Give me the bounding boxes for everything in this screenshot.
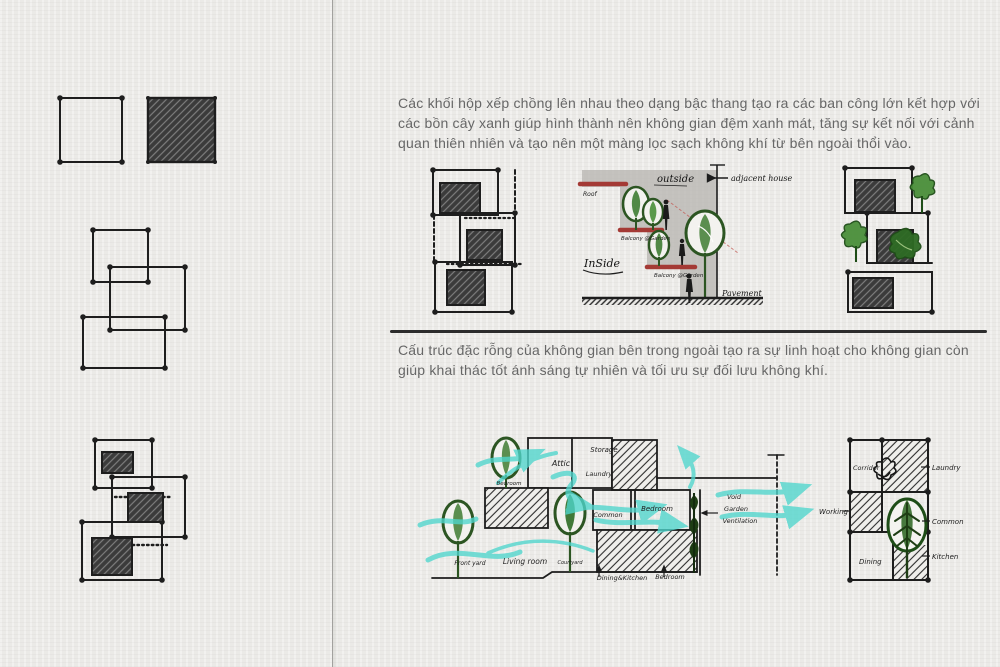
label-plan-laundry: Laundry	[932, 464, 961, 472]
massing-sketch-squares	[45, 85, 235, 180]
label-void: Void	[727, 493, 742, 501]
section-sketch: outside adjacent house Roof Balcony @Gar…	[570, 148, 800, 313]
outline-square	[58, 96, 124, 164]
label-front-yard: Front yard	[454, 560, 485, 567]
hatched-square	[146, 96, 217, 164]
ground-hatch	[582, 299, 763, 305]
plant-middle-left	[842, 221, 868, 262]
label-living-room: Living room	[503, 557, 547, 566]
label-pavement: Pavement	[721, 289, 763, 298]
stacking-diagram	[425, 158, 525, 316]
label-adjacent-house: adjacent house	[731, 174, 792, 183]
hatched-unit-top	[855, 180, 895, 212]
concept-paragraph-1: Các khối hộp xếp chồng lên nhau theo dạn…	[398, 93, 992, 153]
hatched-room-bottom	[447, 270, 485, 305]
label-common: Common	[593, 511, 622, 519]
airflow-section-sketch: Attic Storage Laundry Bedroom Common Bed…	[418, 425, 808, 600]
hatched-unit-bottom	[853, 278, 893, 308]
label-bedroom-middle: Bedroom	[641, 505, 673, 513]
hatched-core-middle	[128, 493, 163, 522]
label-plan-common: Common	[932, 518, 964, 526]
hatched-room-middle	[467, 230, 502, 260]
label-attic: Attic	[551, 459, 571, 468]
label-storage: Storage	[590, 446, 617, 454]
hatched-room-top	[440, 183, 480, 213]
label-balcony-upper: Balcony @Garden	[621, 236, 671, 242]
page-fold-shadow	[333, 0, 339, 667]
plan-hatch-working	[850, 492, 882, 532]
label-corridor: Corridor	[853, 464, 881, 472]
planter-massing-sketch	[838, 158, 973, 313]
section-divider-line	[390, 330, 987, 333]
label-inside: InSide	[583, 257, 621, 270]
tree-top-right	[910, 174, 935, 213]
hatched-core-top	[102, 452, 133, 473]
label-garden: Garden	[724, 505, 748, 513]
floor-plan-sketch: Corridor Laundry Working Common Dining K…	[815, 428, 990, 593]
massing-sketch-stacked-hatched	[70, 430, 200, 590]
label-balcony-lower: Balcony @Garden	[654, 273, 704, 279]
stacked-rect-top	[93, 230, 148, 282]
label-ventilation: Ventilation	[723, 517, 758, 525]
label-dining: Dining	[859, 558, 882, 566]
label-bedroom-lower: Bedroom	[655, 573, 685, 581]
massing-sketch-stacked-outlines	[70, 220, 200, 380]
label-outside: outside	[657, 174, 694, 185]
portfolio-page: Các khối hộp xếp chồng lên nhau theo dạn…	[0, 0, 1000, 667]
label-working: Working	[819, 508, 849, 516]
inside-underline	[583, 270, 623, 274]
label-laundry: Laundry	[586, 470, 613, 478]
stacked-rect-bottom	[83, 317, 165, 368]
label-dining-kitchen: Dining&Kitchen	[597, 574, 647, 582]
plan-hatch-laundry	[882, 440, 928, 492]
label-roof: Roof	[583, 191, 598, 198]
concept-paragraph-2: Cấu trúc đặc rỗng của không gian bên tro…	[398, 340, 992, 380]
label-bedroom-upper: Bedroom	[497, 481, 522, 487]
label-kitchen: Kitchen	[932, 553, 958, 561]
hatched-core-bottom	[92, 538, 132, 575]
label-courtyard: Courtyard	[558, 560, 584, 566]
